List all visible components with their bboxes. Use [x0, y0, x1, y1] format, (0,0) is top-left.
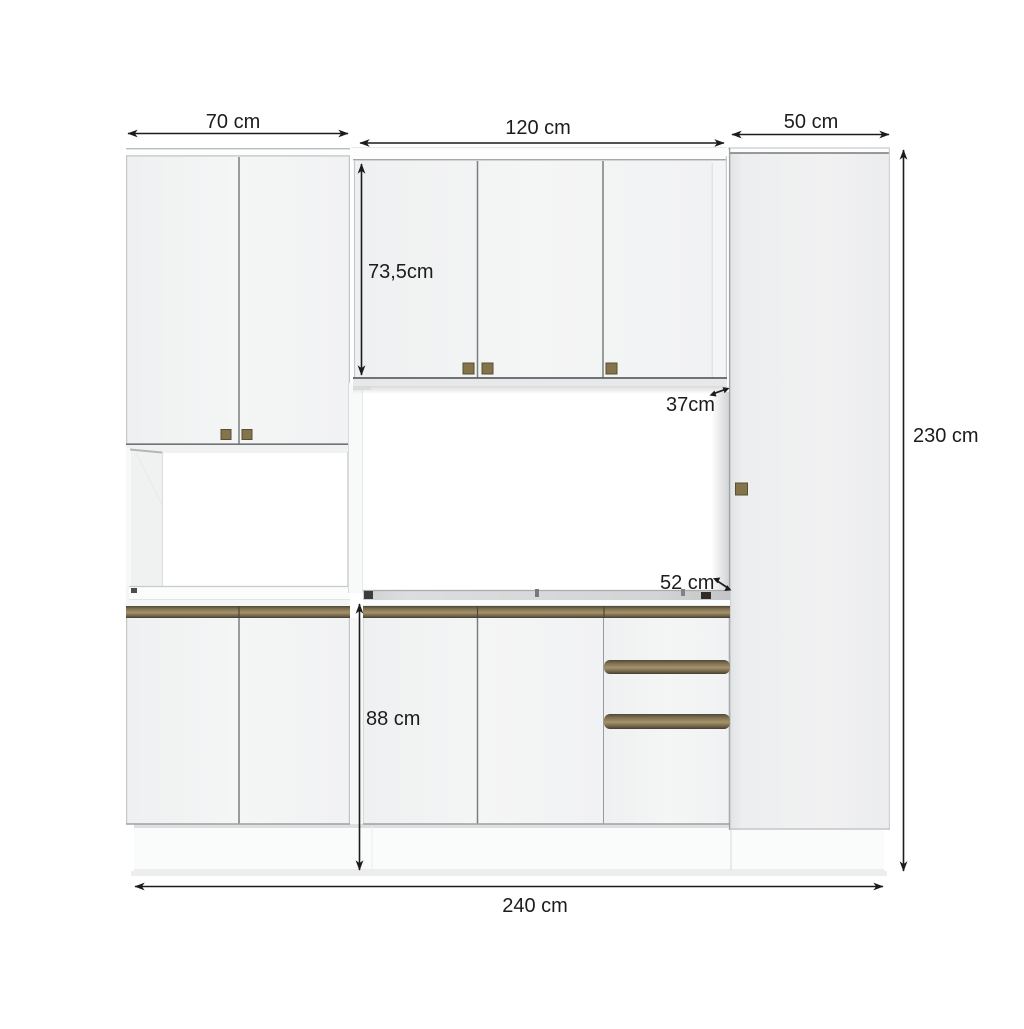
svg-text:230 cm: 230 cm — [913, 425, 979, 447]
svg-text:50 cm: 50 cm — [784, 111, 838, 133]
svg-text:37cm: 37cm — [666, 394, 715, 416]
svg-text:240 cm: 240 cm — [502, 895, 568, 917]
svg-text:88 cm: 88 cm — [366, 708, 420, 730]
svg-text:70 cm: 70 cm — [206, 111, 260, 133]
svg-text:52 cm: 52 cm — [660, 572, 714, 594]
svg-text:73,5cm: 73,5cm — [368, 261, 434, 283]
svg-text:120 cm: 120 cm — [505, 117, 571, 139]
